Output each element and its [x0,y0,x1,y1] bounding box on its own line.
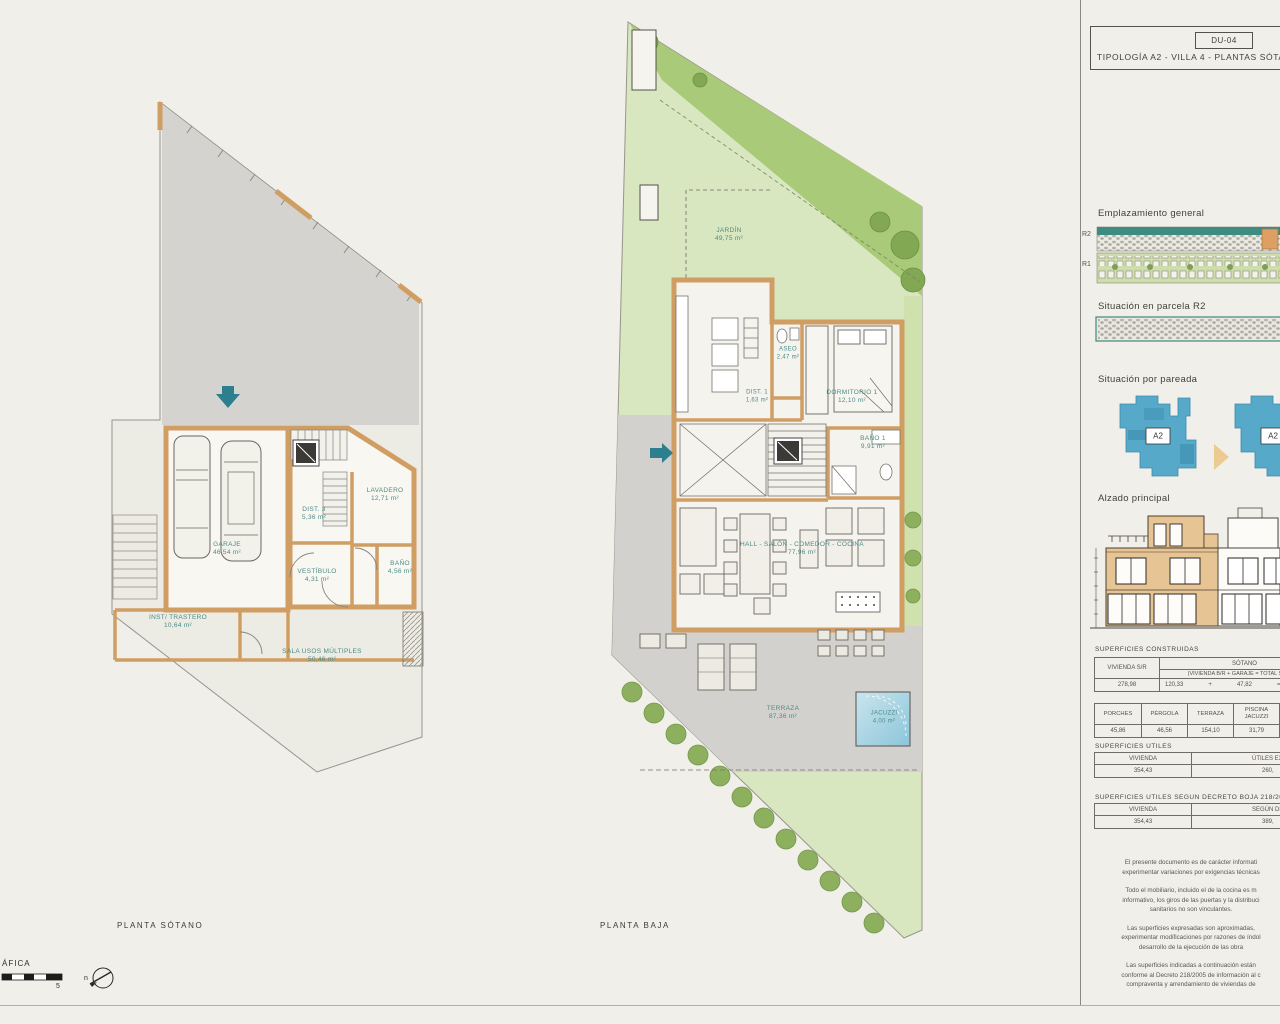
disclaimer-text: El presente documento es de carácter inf… [1090,858,1280,990]
pareada-a2-right: A2 [1268,432,1278,441]
earth-fill [162,104,419,425]
title-decreto: SUPERFICIES ÚTILES SEGÚN DECRETO BOJA 21… [1095,794,1280,801]
room-label-aseo: ASEO2,47 m² [777,347,799,362]
room-label-bano1: BAÑO 19,91 m² [860,435,886,451]
room-label-terraza: TERRAZA87,36 m² [767,705,799,721]
r1-strip [1097,253,1280,283]
room-label-vestibulo: VESTÍBULO4,31 m² [297,568,336,584]
title-construidas: SUPERFICIES CONSTRUIDAS [1095,646,1280,653]
plan-sotano [112,102,423,772]
sheet-title: TIPOLOGÍA A2 - VILLA 4 - PLANTAS SÓTA [1097,52,1280,62]
room-label-dormitorio1: DORMITORIO 112,10 m² [826,389,877,405]
room-label-dist3: DIST. 35,36 m² [302,506,326,522]
scale-bar [2,974,62,980]
th-sotano-sub: (VIVIENDA B/R + GARAJE = TOTAL SÓTANO [1159,669,1280,678]
pareada-arrow-icon [1214,444,1229,470]
td-vivienda-value: 278,98 [1095,678,1159,691]
right-garden-strip [904,296,922,626]
section-label-pareada: Situación por pareada [1098,374,1197,385]
scale-max: 5 [56,983,60,990]
sheet-bottom-line [0,1005,1280,1006]
caption-planta-baja: PLANTA BAJA [600,921,670,930]
parcela-strip [1096,317,1280,341]
room-label-garaje: GARAJE46,54 m² [213,541,241,557]
r2-strip [1097,227,1280,251]
title-utiles: SUPERFICIES ÚTILES [1095,743,1280,750]
table-utiles: VIVIENDA ÚTILES EXT 354,43 260, [1094,752,1280,778]
title-block: DU-04 TIPOLOGÍA A2 - VILLA 4 - PLANTAS S… [1090,26,1280,70]
section-label-emplazamiento: Emplazamiento general [1098,208,1204,219]
north-label: n [84,975,88,982]
th-vivienda-sr: VIVIENDA S/R [1095,658,1159,678]
pergola-hatch [403,612,423,666]
table-construidas-sotano: VIVIENDA S/R SÓTANO (VIVIENDA B/R + GARA… [1094,657,1280,692]
th-sotano: SÓTANO [1159,658,1280,669]
elevator [293,440,319,466]
elevator-baja [774,438,802,464]
exterior-stairs [113,515,157,599]
caption-planta-sotano: PLANTA SÓTANO [117,921,203,930]
room-label-trastero: INST/ TRASTERO10,64 m² [149,614,207,630]
plan-graphics [0,0,1280,1024]
drawing-sheet: GARAJE46,54 m² DIST. 35,36 m² LAVADERO12… [0,0,1280,1024]
pareada-a2-left: A2 [1153,432,1163,441]
panel-divider [1080,0,1081,1005]
table-construidas-ext: PORCHES PÉRGOLA TERRAZA PISCINA JACUZZI … [1094,703,1280,738]
section-label-alzado: Alzado principal [1098,493,1170,504]
room-label-jacuzzi: JACUZZI4,00 m² [871,711,898,726]
alzado-drawing [1090,508,1280,628]
section-label-parcela: Situación en parcela R2 [1098,301,1206,312]
room-label-bano: BAÑO4,56 m² [388,560,412,576]
sidebar-graphics [1090,227,1280,628]
room-label-jardin: JARDÍN49,75 m² [715,227,743,243]
north-arrow-icon [90,968,113,988]
room-label-lavadero: LAVADERO12,71 m² [367,487,404,503]
sheet-code: DU-04 [1195,32,1253,49]
td-sotano-sum: 120,33+ 47,82= 168,15 [1159,678,1280,691]
r2-tag: R2 [1082,231,1091,238]
room-label-dist1: DIST. 11,63 m² [746,390,768,405]
room-label-sala: SALA USOS MÚLTIPLES50,46 m² [282,648,362,664]
r1-tag: R1 [1082,261,1091,268]
scale-label: ÁFICA [2,959,31,968]
room-label-salon: HALL - SALÓN - COMEDOR - COCINA77,96 m² [740,541,864,557]
table-decreto: VIVIENDA SEGÚN DE 354,43 389, [1094,803,1280,829]
plan-baja [606,22,926,938]
